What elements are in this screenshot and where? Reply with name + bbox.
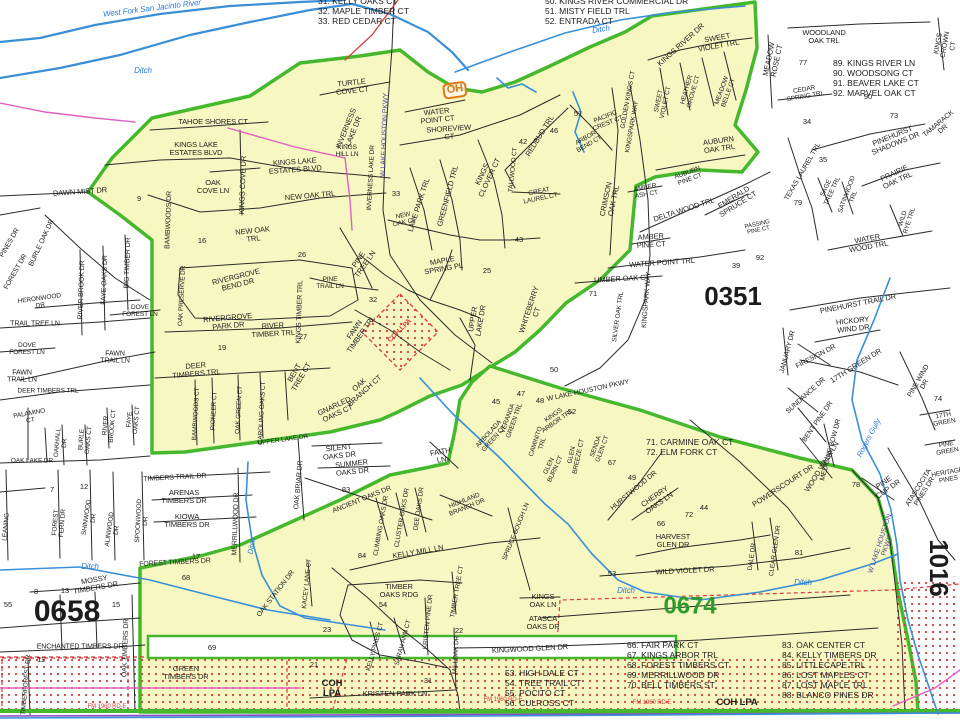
street-label: 9: [137, 195, 141, 203]
street-label: 16: [198, 237, 206, 245]
street-label: 46: [550, 127, 558, 135]
street-label: 55: [4, 601, 12, 609]
street-label: PINES DR: [0, 227, 21, 259]
street-label: WATER POINT CT: [419, 106, 455, 125]
street-label: 45: [492, 398, 500, 406]
coh-lpa-label: COH LPA: [387, 318, 414, 345]
street-label: 35: [819, 156, 827, 164]
street-label: Ditch: [134, 67, 152, 75]
street-label: OAK BRANCH CT: [341, 368, 383, 408]
street-label: WHITEBERRY CT: [518, 285, 548, 336]
map-labels: 0351065806741016OHWest Fork San Jacinto …: [0, 0, 960, 720]
street-label: 66: [657, 520, 665, 528]
street-label: TIMBERFOREST DR: [21, 655, 33, 716]
street-label: AUBURN PINE CT: [674, 166, 704, 188]
street-label: OAK STATION DR: [256, 569, 297, 618]
street-label: PINEHURST TRAIL DR: [819, 293, 896, 316]
street-label: DEE OAKS DR: [414, 487, 427, 531]
street-label: CAROLING OAKS CT: [258, 382, 268, 445]
street-label: Ditch: [247, 537, 258, 555]
street-label: 44: [700, 504, 708, 512]
street-label: CLIMBING OAKS DR: [373, 495, 390, 556]
street-label: KINGS COVE DR: [238, 156, 248, 215]
street-label: KELLY PINES CT: [366, 622, 386, 672]
street-label: FAWN TRAIL LN: [7, 370, 37, 385]
street-label: 22: [455, 627, 463, 635]
street-label: AUBURN OAK TRL: [702, 135, 735, 155]
street-label: OAKHALL DR: [54, 428, 70, 458]
street-label: SHINWOOD DR: [82, 499, 101, 536]
street-label: VERANDA GREEN TRL: [499, 401, 524, 440]
street-label: 34: [803, 118, 811, 126]
street-label: DELTA WOOD TRL: [653, 196, 716, 223]
street-label: TIMBERS TRAIL DR: [143, 473, 206, 484]
street-label: DOVE FOREST LN: [9, 343, 44, 357]
street-label: BIG TIMBER DR: [123, 237, 132, 288]
street-label: Ditch: [617, 587, 635, 595]
street-label: 25: [483, 267, 491, 275]
street-label: WATER WOOD TRL: [847, 232, 889, 254]
street-label: WILD RYE TRL: [896, 205, 917, 234]
street-label: PINE TRAIL LN: [316, 277, 344, 291]
street-label: UPPER LAKE DR: [257, 434, 308, 448]
street-label: 47: [517, 390, 525, 398]
street-label: TEXAS LAUREL TRL: [783, 142, 822, 202]
street-label: HARVEST GLEN DR: [656, 533, 691, 549]
grid-code-0658: 0658: [34, 596, 100, 628]
street-label: 8: [34, 588, 38, 596]
street-label: 92: [756, 254, 764, 262]
street-label: 43: [515, 236, 523, 244]
street-label: 33: [392, 190, 400, 198]
street-label: KELLY MILL LN: [392, 544, 444, 561]
street-label: CAMINITO TRL: [529, 426, 552, 460]
street-label: PINEHURST SHADOWS DR: [868, 123, 921, 157]
street-label: PRAIRIE OAK TRL: [878, 163, 913, 191]
street-label: GOLDEN KINGS CT: [621, 71, 638, 130]
street-label: MAPLE SPRING PL: [422, 254, 463, 276]
street-label: 83: [342, 486, 350, 494]
street-label: ATASCA OAKS DR: [526, 615, 559, 631]
street-label: 81: [795, 549, 803, 557]
street-label: DAWN MIST DR: [53, 186, 108, 198]
street-label: CLUSTER OAKS DR: [394, 488, 411, 548]
street-label: SPRUCE BOUGH LN: [502, 502, 531, 561]
street-label: KRISTEN PARK LN: [363, 690, 428, 698]
street-label: RIVER BROOK DR: [77, 260, 86, 320]
street-label: HERITAGE PINES: [931, 467, 960, 486]
street-label: SUNDANCE DR: [785, 376, 827, 415]
street-label: 17TH GREEN DR: [829, 347, 883, 385]
street-label: 79: [794, 199, 802, 207]
street-label: TAHOE SHORES CT: [178, 118, 248, 126]
street-label: 27: [299, 333, 307, 341]
street-label: SENDA GLEN CT: [589, 433, 611, 464]
street-label: CEDAR SPRING TRL: [785, 84, 825, 104]
street-label: SUMMER OAKS DR: [335, 458, 370, 477]
street-label: LAKE PARK TRL: [407, 177, 432, 233]
street-label: AMBER PINE CT: [636, 232, 666, 250]
street-label: ATASCOCITA PINES DR: [905, 468, 940, 511]
street-label: 19: [218, 344, 226, 352]
street-label: CLEAR GLEN DR: [769, 525, 783, 577]
street-label: NEW OAK CT: [391, 211, 417, 229]
street-label: Ditch: [592, 25, 611, 36]
street-label: SWEET VIOLET TRL: [696, 31, 740, 54]
grid-code-0351: 0351: [704, 283, 761, 311]
street-label: 42: [519, 138, 527, 146]
street-label: GREAT LAUREL CT: [522, 186, 559, 207]
street-label: 68: [182, 574, 190, 582]
street-label: RIVER BROOK CT: [102, 409, 119, 443]
street-label: LEANING: [2, 513, 11, 541]
street-label: W LAKE HOUSTON PKWY: [865, 507, 903, 584]
street-label: DOVE FOREST LN: [122, 305, 157, 319]
street-label: EMERALD SPRUCE CT: [714, 183, 758, 219]
street-label: HIGHLAND BRANCH DR: [446, 492, 486, 519]
street-label: ARBOLADA GREEN CT: [475, 420, 508, 455]
street-label: FAWN TIMBER TRL: [339, 310, 377, 355]
key-map-page: 31. KELLY OAKS CT 32. MAPLE TIMBER CT 33…: [0, 0, 960, 720]
street-label: TAMARACK DR: [922, 109, 960, 145]
street-label: KINGS OAK LN: [530, 593, 557, 609]
street-label: UMBER OAK CT: [594, 274, 650, 285]
street-label: 26: [298, 251, 306, 259]
street-label: SARAH ANN CT: [395, 619, 414, 666]
street-label: BAMBWOODS DR: [164, 191, 173, 249]
river-label: West Fork San Jacinto River: [103, 0, 202, 19]
street-label: NEW OAK TRL: [285, 190, 336, 202]
street-label: 50: [550, 366, 558, 374]
street-label: KINGS LAKE ESTATES BLVD: [268, 156, 322, 176]
street-label: PINE TREE LN: [347, 245, 378, 279]
grid-code-1016: 1016: [924, 539, 952, 596]
street-label: FAYE OAKS DR: [100, 255, 109, 305]
street-label: GLEN BREEZE CT: [566, 437, 587, 475]
street-label: MEADOW BELLE CT: [714, 76, 737, 109]
street-label: 49: [628, 474, 636, 482]
street-label: GLEN BURN CT: [541, 452, 565, 483]
street-label: DEER TIMBERS TRL: [171, 360, 221, 380]
street-label: Ditch: [794, 579, 812, 587]
street-label: 17TH GREEN: [932, 411, 957, 428]
street-label: AMBER ASH CT: [633, 183, 658, 201]
street-label: BURLE OAKS CT: [78, 426, 94, 455]
grid-cell-marker: OH: [442, 81, 468, 100]
street-label: 11: [37, 656, 45, 664]
street-label: RIVER TIMBER TRL: [251, 321, 295, 339]
street-label: ENCHANTED TIMBERS DR: [37, 643, 124, 650]
street-label: 54: [379, 601, 387, 609]
street-label: ARBOR BEND CT: [573, 129, 604, 155]
street-label: SILVER OAK TRL: [612, 291, 626, 342]
street-label: TIMBER TREE CT: [450, 565, 466, 618]
street-label: KINGS TIMBER TRL: [295, 280, 305, 344]
street-label: ALINWOOD DR: [105, 512, 123, 548]
street-label: TALLWOOD CT: [508, 147, 520, 192]
street-label: KINGS CLOVER CT: [470, 154, 502, 199]
street-label: TRAIL TREE LN: [10, 320, 60, 327]
street-label: W LAKE HOUSTON PKWY: [546, 379, 630, 404]
street-label: GREEN TIMBERS DR: [163, 665, 208, 681]
street-label: MERRILLWOOD DR: [231, 492, 241, 555]
street-label: RIVERGROVE BEND DR: [211, 267, 262, 294]
street-label: KINGS HILL LN: [336, 145, 359, 159]
street-label: SATINWOOD TRL: [838, 175, 864, 216]
street-label: 53: [608, 570, 616, 578]
street-label: KINGS LAKE ESTATES BLVD: [170, 141, 223, 157]
street-label: GREENFIELD TRL: [436, 165, 460, 228]
street-label: PINE WIND DR: [906, 363, 938, 403]
street-label: Ditch: [81, 563, 99, 571]
street-label: FAWN TRAIL LN: [100, 351, 130, 366]
street-label: BENT PINE DR: [801, 400, 834, 443]
street-label: KINGS CROWN CT: [933, 30, 960, 60]
street-label: 31: [424, 677, 432, 685]
street-label: INVERNESS LAKE DR: [367, 145, 377, 211]
street-label: HERONWOOD DR: [17, 293, 62, 313]
street-label: Rogers Gully: [856, 418, 883, 459]
street-label: SILENT OAKS DR: [322, 442, 357, 461]
street-label: KINGSPARK WAY: [641, 272, 653, 329]
street-label: GNARLED OAKS CT: [317, 395, 356, 424]
street-label: PACIFIC CREST CT: [590, 109, 624, 134]
street-label: KINGS ARBOR TRL: [537, 403, 575, 435]
street-label: 52: [568, 408, 576, 416]
street-label: WOODLAND OAK TRL: [802, 29, 845, 45]
street-label: JANUARY DR: [779, 330, 797, 374]
street-label: PIONEER CT: [211, 391, 220, 430]
street-label: KINGSPARK WAY: [625, 101, 641, 153]
street-label: 32: [369, 296, 377, 304]
street-label: KINGWOOD GLEN DR: [492, 643, 569, 655]
street-label: MILLOAK DR: [453, 636, 462, 675]
street-label: 72: [685, 511, 693, 519]
street-label: KIOWA TIMBERS DR: [164, 513, 209, 529]
street-label: 78: [852, 481, 860, 489]
street-label: WILD VIOLET DR: [655, 565, 714, 576]
street-label: OAK TIMBERS DR: [121, 619, 130, 678]
street-label: 12: [80, 483, 88, 491]
street-label: FM 1960 RD-E: [88, 704, 127, 710]
street-label: 15: [112, 601, 120, 609]
street-label: PALAMINO CT: [13, 408, 47, 427]
street-label: DEER TIMBERS TRL: [17, 389, 78, 396]
street-label: OAK LAKE DR: [11, 459, 53, 466]
street-label: OAK COVE LN: [197, 179, 229, 195]
street-label: CHERRY OAKS LN: [639, 484, 674, 515]
street-label: FIRESIGN DR: [795, 343, 837, 370]
street-label: WATER POINT TRL: [629, 257, 695, 270]
street-label: FM 1960 RD-E: [484, 697, 523, 703]
street-label: MEADOW ROSE CT: [762, 42, 785, 79]
street-label: KACEY LANE CT: [302, 559, 314, 609]
street-label: 67: [608, 459, 616, 467]
coh-lpa-label: COH LPA: [716, 698, 757, 708]
street-label: OAK PRESERVE DR: [178, 266, 188, 327]
street-label: ARENAS TIMBERS DR: [161, 489, 206, 505]
street-label: BURLE OAK DR: [28, 218, 56, 267]
street-label: UPPER LAKE DR: [466, 303, 487, 337]
street-label: PINE GREEN: [935, 440, 960, 457]
street-label: DALE DR: [748, 543, 759, 571]
street-label: BAMBWOODS CT: [192, 387, 202, 440]
street-label: 51: [574, 110, 582, 118]
street-label: OAK GREEN CT: [235, 386, 244, 434]
street-label: FOREST DR: [3, 253, 29, 291]
coh-lpa-label: COH LPA: [322, 679, 343, 699]
street-label: 13: [61, 587, 69, 595]
street-label: PINE CUP DR: [870, 471, 902, 500]
street-label: 77: [799, 59, 807, 67]
street-label: SHOREVIEW CT: [426, 124, 472, 143]
street-label: HURSTWOOD DR: [610, 470, 659, 513]
street-label: 73: [890, 112, 898, 120]
street-label: INVERNESS LAKE DR: [335, 107, 366, 152]
street-label: FAITH LN: [429, 446, 452, 465]
street-label: 84: [358, 552, 366, 560]
street-label: MOSSY TIMBERS DR: [71, 572, 118, 595]
street-label: FAYE OAKS CT: [126, 406, 142, 435]
street-label: 17: [192, 553, 200, 561]
street-label: TIMBER OAKS RDG: [380, 583, 419, 599]
street-label: FM 1960 RD E: [633, 700, 671, 706]
street-label: 7: [50, 486, 54, 494]
street-label: OAK BRIAR DR: [293, 460, 305, 509]
street-label: 90: [864, 93, 872, 101]
street-label: BENT TREE CT: [283, 357, 312, 392]
street-label: FOREST TIMBERS DR: [139, 557, 211, 568]
street-label: MEDICINE BOW DR: [819, 418, 843, 481]
street-label: POWERSCOURT DR: [751, 463, 815, 508]
street-label: 39: [732, 262, 740, 270]
street-label: SWEET VIOLET CT: [653, 85, 673, 120]
street-label: RIVERGROVE PARK DR: [203, 312, 253, 332]
street-label: WOOD WALK LN: [803, 440, 840, 493]
street-label: REDBUD TRL: [524, 114, 556, 158]
street-label: NEW OAK TRL: [235, 225, 271, 244]
street-label: W LAKE HOUSTON PKWY: [380, 93, 390, 177]
street-label: ANCIENT OAKS DR: [332, 485, 393, 515]
street-label: PASSING PINE CT: [744, 219, 772, 237]
street-label: HICKORY WIND DR: [836, 315, 871, 334]
street-label: KINGS RIVER DR: [656, 22, 706, 68]
street-label: 21: [310, 661, 318, 669]
street-label: 74: [934, 395, 942, 403]
street-label: KRISTEN PINE DR: [423, 594, 436, 649]
street-label: FOREST FERN DR: [52, 508, 68, 537]
street-label: 69: [208, 644, 216, 652]
street-label: TURTLE COVE CT: [335, 77, 369, 96]
street-label: 48: [536, 397, 544, 405]
street-label: SAGE TREE TRL: [817, 173, 842, 206]
street-label: CRIMSON OAK TRL: [599, 181, 622, 218]
grid-code-0674: 0674: [664, 593, 717, 618]
street-label: SPOONWOOD DR: [135, 499, 151, 543]
street-label: 23: [323, 626, 331, 634]
street-label: HEATHER GROVE CT: [680, 73, 702, 109]
street-label: 71: [589, 290, 597, 298]
